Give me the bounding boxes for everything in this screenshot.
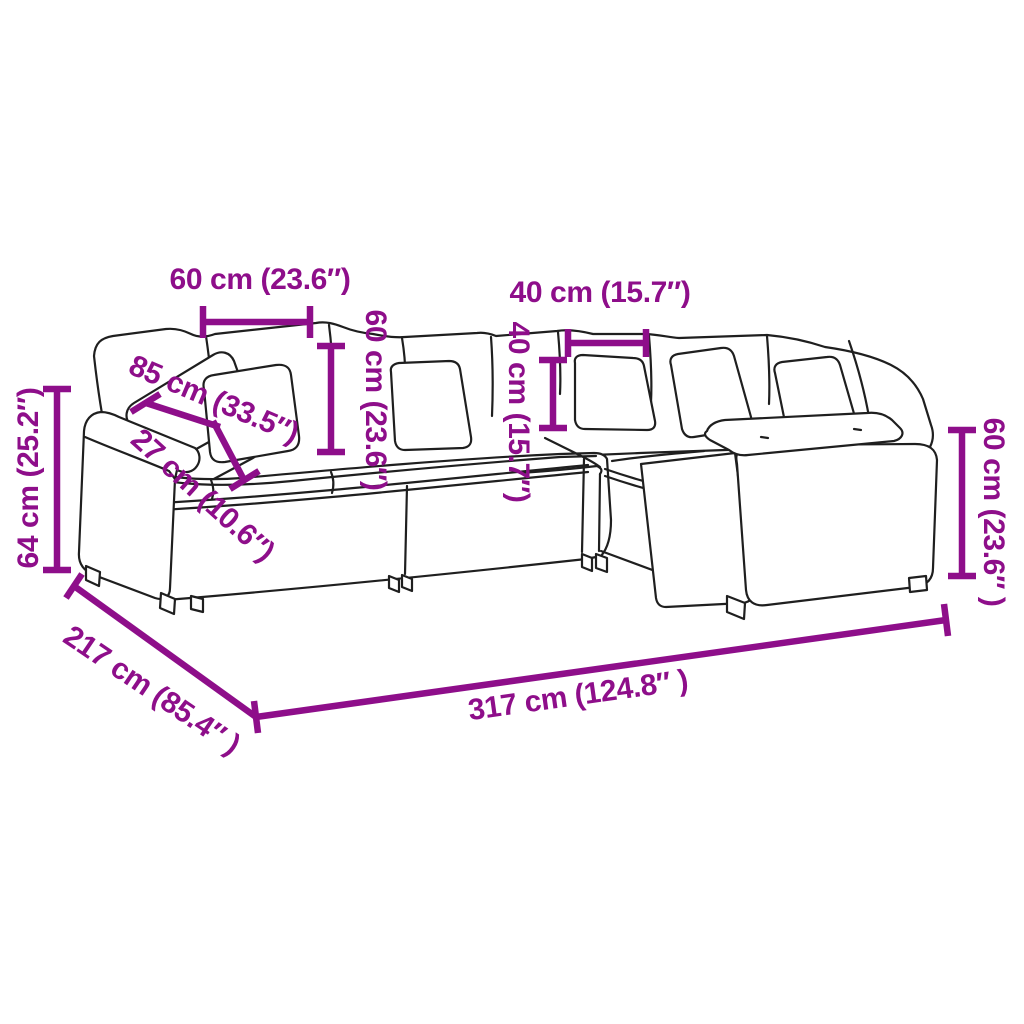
dim-label-height-40-back: 40 cm (15.7″) [502, 322, 535, 503]
dim-label-width-60-top: 60 cm (23.6″) [170, 263, 351, 296]
sofa-leg [909, 576, 927, 592]
sofa-leg [596, 554, 607, 572]
pillow [391, 361, 471, 450]
right-arm-front [736, 444, 937, 605]
sofa-leg [582, 554, 592, 571]
plank-button [761, 437, 768, 438]
corner-base-seam [599, 474, 600, 551]
pillow [575, 355, 655, 430]
dim-label-height-60-back: 60 cm (23.6″) [359, 310, 392, 491]
dim-label-height-60-right: 60 cm (23.6″ ) [977, 418, 1010, 607]
sofa-leg [191, 596, 203, 612]
sofa-dimension-diagram: 60 cm (23.6″) 40 cm (15.7″) 60 cm (23.6″… [0, 0, 1024, 1024]
dim-label-width-40-top: 40 cm (15.7″) [510, 276, 691, 309]
plank-button [854, 429, 861, 430]
right-arm-inner-panel [641, 453, 753, 607]
sofa-leg [389, 576, 399, 592]
sofa-leg [402, 575, 412, 591]
dim-label-height-64-left: 64 cm (25.2″) [12, 388, 45, 569]
